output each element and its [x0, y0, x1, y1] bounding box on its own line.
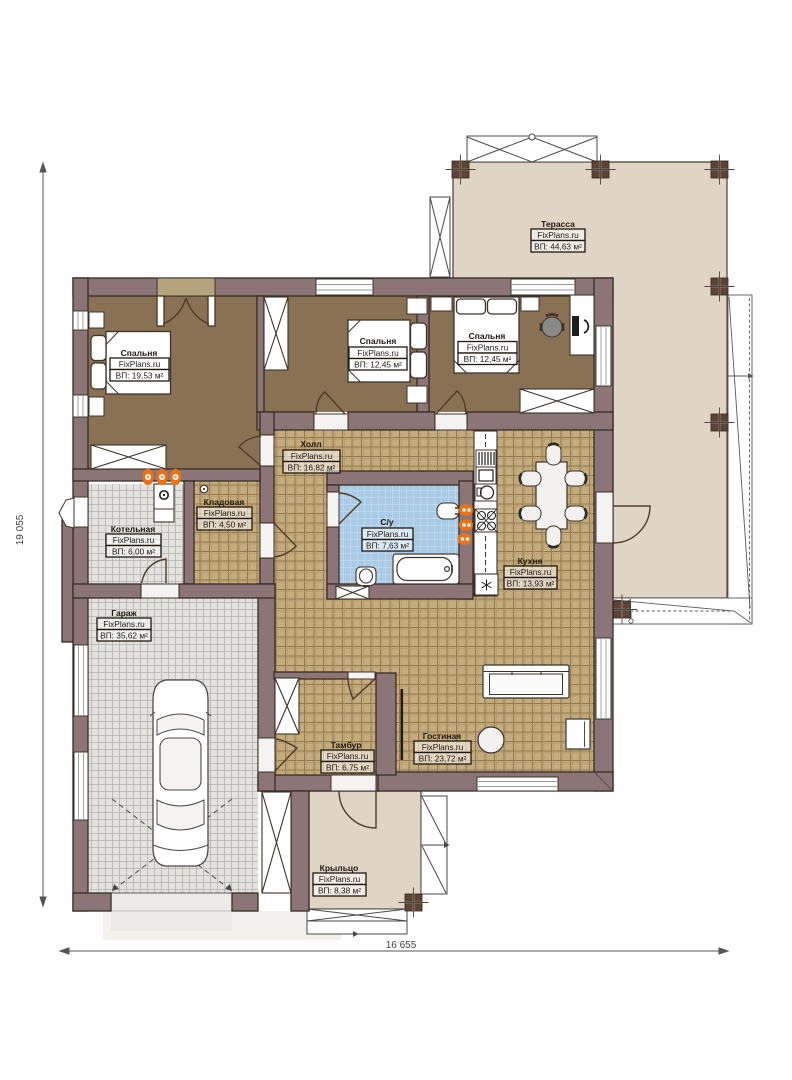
- svg-text:ВП: 7,63 м²: ВП: 7,63 м²: [366, 541, 409, 551]
- svg-text:Терасса: Терасса: [541, 219, 575, 229]
- svg-text:FixPlans.ru: FixPlans.ru: [467, 343, 509, 353]
- svg-text:Гостиная: Гостиная: [423, 731, 461, 741]
- svg-text:Котельная: Котельная: [111, 524, 156, 534]
- svg-text:Спальня: Спальня: [121, 348, 158, 358]
- svg-text:ВП: 4,50 м²: ВП: 4,50 м²: [203, 520, 246, 530]
- svg-text:FixPlans.ru: FixPlans.ru: [291, 451, 333, 461]
- svg-text:ВП: 13,93 м²: ВП: 13,93 м²: [507, 579, 555, 589]
- svg-text:ВП: 6,00 м²: ВП: 6,00 м²: [112, 547, 155, 557]
- svg-text:Кладовая: Кладовая: [204, 497, 245, 507]
- svg-text:Спальня: Спальня: [360, 336, 397, 346]
- svg-text:Гараж: Гараж: [111, 608, 137, 618]
- svg-text:ВП: 35,62 м²: ВП: 35,62 м²: [100, 631, 148, 641]
- svg-text:ВП: 8,38 м²: ВП: 8,38 м²: [318, 886, 361, 896]
- svg-text:ВП: 16,82 м²: ВП: 16,82 м²: [288, 463, 336, 473]
- svg-text:FixPlans.ru: FixPlans.ru: [327, 751, 369, 761]
- svg-text:ВП: 23,72 м²: ВП: 23,72 м²: [419, 754, 467, 764]
- svg-text:ВП: 6,75 м²: ВП: 6,75 м²: [326, 763, 369, 773]
- svg-text:FixPlans.ru: FixPlans.ru: [119, 359, 161, 369]
- svg-text:FixPlans.ru: FixPlans.ru: [357, 348, 399, 358]
- svg-text:Крыльцо: Крыльцо: [320, 863, 359, 873]
- svg-text:ВП: 12,45 м²: ВП: 12,45 м²: [464, 354, 512, 364]
- svg-text:FixPlans.ru: FixPlans.ru: [510, 567, 552, 577]
- svg-text:ВП: 19,53 м²: ВП: 19,53 м²: [116, 371, 164, 381]
- svg-text:Холл: Холл: [300, 439, 321, 449]
- svg-text:FixPlans.ru: FixPlans.ru: [103, 619, 145, 629]
- svg-text:19 055: 19 055: [15, 514, 26, 545]
- svg-text:FixPlans.ru: FixPlans.ru: [204, 508, 246, 518]
- svg-text:FixPlans.ru: FixPlans.ru: [422, 742, 464, 752]
- svg-text:FixPlans.ru: FixPlans.ru: [537, 230, 579, 240]
- svg-text:ВП: 44,63 м²: ВП: 44,63 м²: [534, 242, 582, 252]
- svg-text:FixPlans.ru: FixPlans.ru: [367, 529, 409, 539]
- svg-text:ВП: 12,45 м²: ВП: 12,45 м²: [354, 360, 402, 370]
- svg-text:FixPlans.ru: FixPlans.ru: [113, 535, 155, 545]
- svg-text:FixPlans.ru: FixPlans.ru: [319, 874, 361, 884]
- svg-text:16 655: 16 655: [386, 940, 417, 951]
- svg-text:С/у: С/у: [380, 517, 394, 527]
- svg-text:Кухня: Кухня: [518, 556, 543, 566]
- svg-text:Тамбур: Тамбур: [331, 740, 362, 750]
- svg-text:Спальня: Спальня: [469, 331, 506, 341]
